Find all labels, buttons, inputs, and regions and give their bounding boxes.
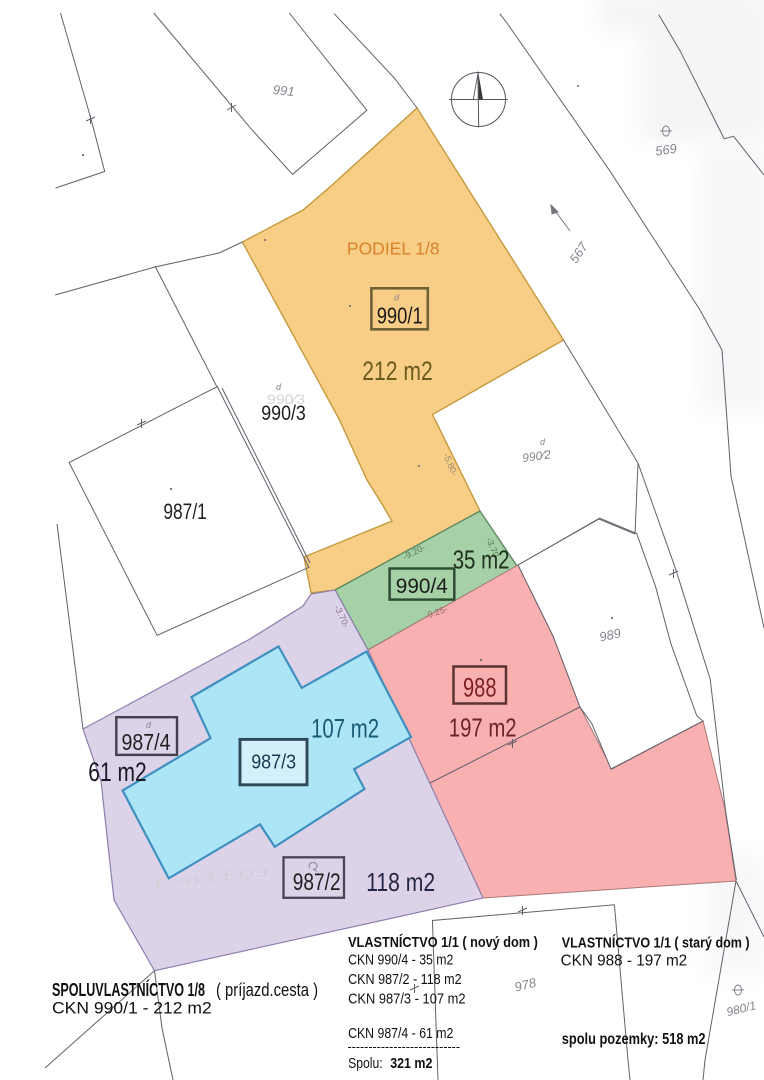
svg-text:35 m2: 35 m2: [453, 545, 510, 575]
svg-text:VLASTNÍCTVO 1/1 ( nový dom ): VLASTNÍCTVO 1/1 ( nový dom ): [348, 934, 538, 951]
svg-text:CKN 987/3 - 107 m2: CKN 987/3 - 107 m2: [348, 991, 465, 1007]
svg-text:spolu pozemky: 518 m2: spolu pozemky: 518 m2: [562, 1031, 706, 1048]
svg-text:987/3: 987/3: [251, 752, 296, 774]
svg-text:CKN 990/4 - 35 m2: CKN 990/4 - 35 m2: [348, 953, 453, 969]
svg-text:VLASTNÍCTVO 1/1 ( starý dom ): VLASTNÍCTVO 1/1 ( starý dom ): [562, 934, 750, 951]
svg-text:990/1: 990/1: [377, 303, 423, 329]
svg-text:990/4: 990/4: [396, 575, 448, 598]
svg-text:Spolu:: Spolu:: [348, 1055, 383, 1072]
svg-text:990/3: 990/3: [261, 402, 306, 425]
svg-text:988: 988: [463, 673, 497, 703]
svg-text:PODIEL 1/8: PODIEL 1/8: [347, 239, 440, 259]
svg-text:---------------------------: ---------------------------: [348, 1039, 461, 1054]
svg-text:61 m2: 61 m2: [88, 757, 146, 787]
svg-text:987/4: 987/4: [122, 729, 171, 755]
svg-text:CKN 990/1 - 212 m2: CKN 990/1 - 212 m2: [52, 999, 212, 1018]
svg-text:197 m2: 197 m2: [449, 713, 517, 743]
svg-text:CKN 987/2 - 118 m2: CKN 987/2 - 118 m2: [348, 972, 462, 988]
svg-text:991: 991: [272, 82, 295, 99]
svg-text:107 m2: 107 m2: [311, 714, 379, 744]
svg-text:SPOLUVLASTNÍCTVO 1/8: SPOLUVLASTNÍCTVO 1/8: [52, 979, 205, 1000]
svg-text:321 m2: 321 m2: [390, 1055, 432, 1072]
svg-text:987/2: 987/2: [293, 869, 341, 896]
svg-text:118 m2: 118 m2: [366, 867, 435, 897]
svg-text:212 m2: 212 m2: [362, 356, 433, 386]
svg-text:569: 569: [654, 141, 678, 159]
svg-text:987/1: 987/1: [163, 499, 206, 524]
svg-text:( príjazd.cesta ): ( príjazd.cesta ): [216, 980, 318, 1000]
svg-text:CKN 988 - 197 m2: CKN 988 - 197 m2: [561, 953, 688, 970]
